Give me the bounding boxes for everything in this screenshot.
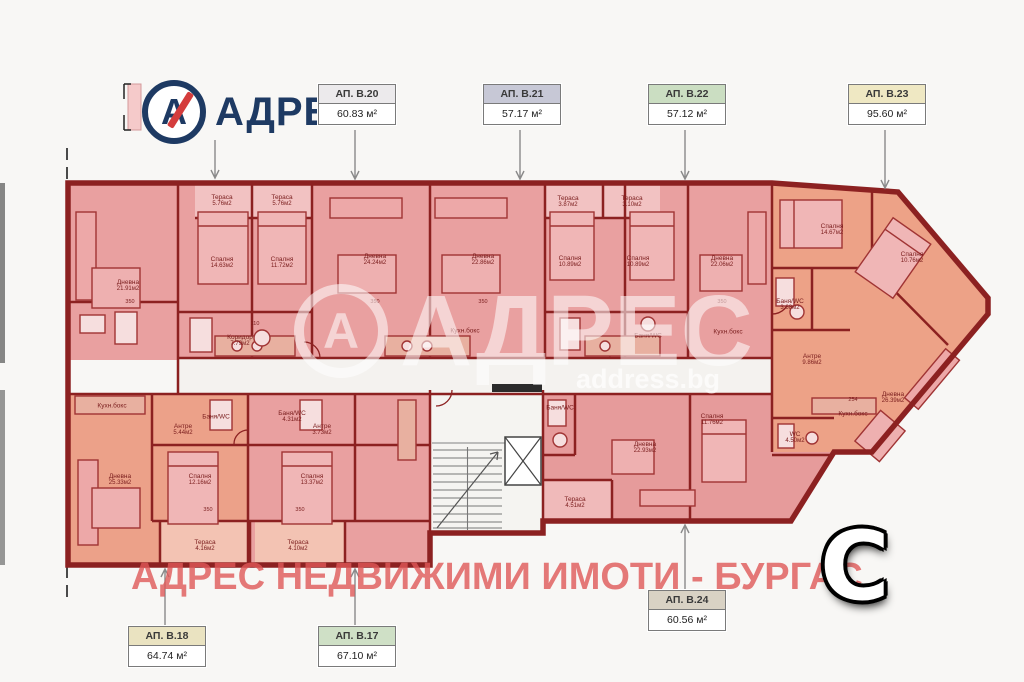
dimension-label: 254 xyxy=(848,397,857,403)
room-label: Дневна22.86м2 xyxy=(472,253,494,267)
room-label: Антре3.73м2 xyxy=(312,423,331,437)
room-label: Кухн.бокс xyxy=(713,328,742,335)
apartment-label-ap-b17: АП. В.1767.10 м² xyxy=(318,626,396,667)
room-label: Кухн.бокс xyxy=(838,410,867,417)
apartment-name: АП. В.24 xyxy=(649,591,725,610)
apartment-name: АП. В.18 xyxy=(129,627,205,646)
room-label: Спалня14.67м2 xyxy=(821,223,844,237)
dimension-label: 350 xyxy=(203,507,212,513)
apartment-area: 95.60 м² xyxy=(849,104,925,124)
dimension-label: 350 xyxy=(125,299,134,305)
room-label: Спалня10.89м2 xyxy=(627,255,650,269)
room-label: Кухн.бокс xyxy=(450,327,479,334)
apartment-label-ap-b23: АП. В.2395.60 м² xyxy=(848,84,926,125)
room-label: Тераса4.10м2 xyxy=(287,539,308,553)
apartment-name: АП. В.20 xyxy=(319,85,395,104)
apartment-name: АП. В.23 xyxy=(849,85,925,104)
apartment-name: АП. В.17 xyxy=(319,627,395,646)
apartment-area: 60.83 м² xyxy=(319,104,395,124)
room-label: Дневна22.93м2 xyxy=(634,441,656,455)
room-label: Коридор7.79м2 xyxy=(227,334,253,348)
room-label: Тераса5.76м2 xyxy=(211,194,232,208)
room-label: Дневна25.33м2 xyxy=(109,473,131,487)
edge-artifact xyxy=(0,390,5,565)
apartment-area: 67.10 м² xyxy=(319,646,395,666)
logo-a-icon: А xyxy=(142,80,206,144)
apartment-area: 64.74 м² xyxy=(129,646,205,666)
apartment-area: 57.12 м² xyxy=(649,104,725,124)
dimension-label: 350 xyxy=(295,507,304,513)
room-label: Тераса3.10м2 xyxy=(621,195,642,209)
dimension-label: 110 xyxy=(251,321,260,327)
room-label: Дневна26.39м2 xyxy=(882,391,904,405)
room-label: Баня/WC xyxy=(634,332,662,339)
room-label: Тераса5.76м2 xyxy=(271,194,292,208)
apartment-label-ap-b22: АП. В.2257.12 м² xyxy=(648,84,726,125)
room-label: Тераса4.16м2 xyxy=(194,539,215,553)
apartment-area: 60.56 м² xyxy=(649,610,725,630)
apartment-label-ap-b20: АП. В.2060.83 м² xyxy=(318,84,396,125)
room-label: Тераса4.51м2 xyxy=(564,496,585,510)
room-label: Дневна22.06м2 xyxy=(711,255,733,269)
compass-north-letter: C xyxy=(820,520,890,615)
room-label: Дневна24.24м2 xyxy=(364,253,386,267)
room-label: Спалня10.89м2 xyxy=(559,255,582,269)
apartment-name: АП. В.22 xyxy=(649,85,725,104)
room-label: Баня/WC xyxy=(202,413,230,420)
entrance-threshold xyxy=(492,384,542,392)
legend-tab xyxy=(124,84,141,130)
room-label: Спалня13.37м2 xyxy=(301,473,324,487)
room-label: Баня/WC4.31м2 xyxy=(278,410,306,424)
apartment-label-ap-b18: АП. В.1864.74 м² xyxy=(128,626,206,667)
room-label: Спалня11.72м2 xyxy=(271,256,294,270)
dimension-label: 350 xyxy=(478,299,487,305)
room-label: Антре9.86м2 xyxy=(802,353,821,367)
room-label: Дневна21.91м2 xyxy=(117,279,139,293)
room-label: Спалня10.76м2 xyxy=(901,251,924,265)
dimension-label: 350 xyxy=(717,299,726,305)
apartment-name: АП. В.21 xyxy=(484,85,560,104)
edge-artifact xyxy=(0,183,5,363)
apartment-label-ap-b24: АП. В.2460.56 м² xyxy=(648,590,726,631)
room-label: Спалня12.16м2 xyxy=(189,473,212,487)
room-label: Баня/WC3.68м2 xyxy=(776,298,804,312)
room-label: Антре5.44м2 xyxy=(173,423,192,437)
apartment-label-ap-b21: АП. В.2157.17 м² xyxy=(483,84,561,125)
room-label: Кухн.бокс xyxy=(97,402,126,409)
room-label: Тераса3.87м2 xyxy=(557,195,578,209)
room-label: WC4.50м2 xyxy=(785,431,804,445)
room-label: Баня/WC xyxy=(546,404,574,411)
floor-plan-page: А АДРЕС АП. В.2060.83 м²АП. В.2157.17 м²… xyxy=(0,0,1024,682)
dimension-label: 350 xyxy=(370,299,379,305)
room-label: Спалня11.76м2 xyxy=(701,413,724,427)
room-label: Спалня14.63м2 xyxy=(211,256,234,270)
apartment-area: 57.17 м² xyxy=(484,104,560,124)
